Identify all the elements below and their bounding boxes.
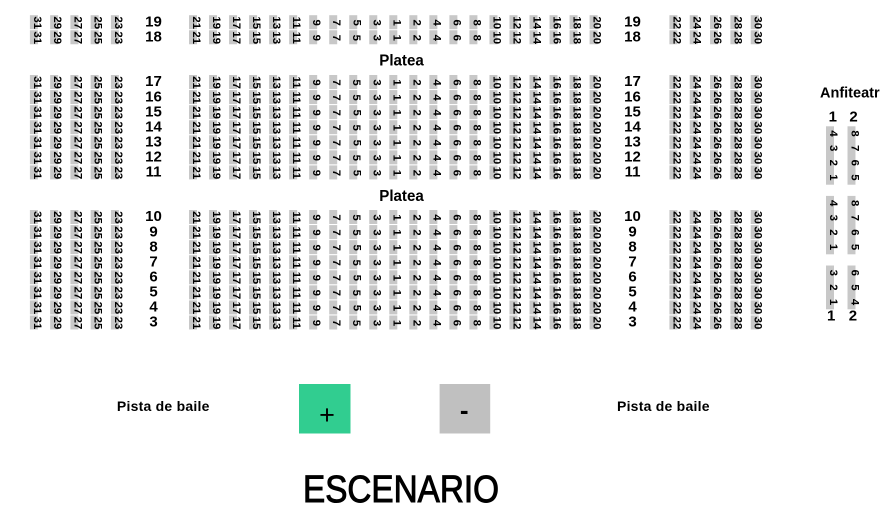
svg-text:11: 11 bbox=[290, 287, 302, 300]
svg-text:26: 26 bbox=[711, 317, 723, 330]
svg-text:19: 19 bbox=[210, 302, 222, 315]
svg-text:6: 6 bbox=[849, 270, 861, 276]
svg-text:7: 7 bbox=[330, 109, 342, 115]
svg-text:8: 8 bbox=[470, 125, 482, 131]
svg-text:29: 29 bbox=[51, 31, 63, 44]
svg-text:26: 26 bbox=[711, 152, 723, 165]
svg-text:11: 11 bbox=[290, 302, 302, 315]
svg-text:21: 21 bbox=[190, 271, 202, 284]
svg-text:9: 9 bbox=[310, 35, 322, 41]
svg-text:22: 22 bbox=[670, 152, 682, 165]
svg-text:26: 26 bbox=[711, 271, 723, 284]
svg-text:27: 27 bbox=[71, 136, 83, 149]
svg-text:13: 13 bbox=[270, 76, 282, 89]
svg-text:18: 18 bbox=[571, 271, 583, 284]
svg-text:8: 8 bbox=[849, 200, 861, 206]
svg-text:7: 7 bbox=[330, 170, 342, 176]
svg-text:13: 13 bbox=[270, 271, 282, 284]
svg-text:26: 26 bbox=[711, 16, 723, 29]
svg-text:4: 4 bbox=[430, 229, 442, 236]
svg-text:20: 20 bbox=[591, 76, 603, 89]
svg-text:8: 8 bbox=[849, 130, 861, 136]
svg-text:4: 4 bbox=[827, 200, 839, 207]
svg-text:1: 1 bbox=[390, 229, 402, 236]
svg-text:28: 28 bbox=[731, 167, 743, 180]
svg-text:8: 8 bbox=[470, 229, 482, 235]
svg-text:16: 16 bbox=[551, 271, 563, 284]
svg-text:12: 12 bbox=[510, 302, 522, 315]
svg-text:28: 28 bbox=[731, 16, 743, 29]
svg-text:22: 22 bbox=[670, 241, 682, 254]
svg-text:24: 24 bbox=[691, 241, 703, 254]
svg-text:18: 18 bbox=[571, 211, 583, 224]
svg-text:24: 24 bbox=[691, 16, 703, 29]
svg-text:5: 5 bbox=[350, 170, 362, 177]
svg-text:28: 28 bbox=[731, 31, 743, 44]
svg-text:21: 21 bbox=[190, 91, 202, 104]
svg-text:1: 1 bbox=[390, 305, 402, 312]
svg-text:27: 27 bbox=[71, 317, 83, 330]
svg-text:29: 29 bbox=[51, 241, 63, 254]
svg-text:21: 21 bbox=[190, 106, 202, 119]
svg-text:17: 17 bbox=[230, 16, 242, 29]
svg-text:11: 11 bbox=[290, 76, 302, 89]
svg-text:5: 5 bbox=[350, 214, 362, 221]
svg-text:17: 17 bbox=[230, 31, 242, 44]
svg-text:6: 6 bbox=[450, 305, 462, 311]
svg-text:8: 8 bbox=[470, 155, 482, 161]
svg-text:3: 3 bbox=[370, 214, 382, 220]
svg-text:26: 26 bbox=[711, 287, 723, 300]
svg-text:30: 30 bbox=[752, 152, 764, 165]
svg-text:9: 9 bbox=[310, 109, 322, 115]
svg-text:9: 9 bbox=[310, 170, 322, 176]
svg-text:16: 16 bbox=[551, 106, 563, 119]
svg-text:26: 26 bbox=[711, 136, 723, 149]
svg-text:3: 3 bbox=[370, 20, 382, 26]
svg-text:17: 17 bbox=[230, 136, 242, 149]
svg-text:13: 13 bbox=[270, 167, 282, 180]
svg-text:4: 4 bbox=[430, 109, 442, 116]
svg-text:1: 1 bbox=[827, 244, 839, 251]
svg-text:19: 19 bbox=[210, 211, 222, 224]
svg-text:2: 2 bbox=[827, 229, 839, 235]
svg-text:20: 20 bbox=[591, 317, 603, 330]
svg-text:20: 20 bbox=[591, 271, 603, 284]
svg-text:6: 6 bbox=[450, 229, 462, 235]
svg-text:14: 14 bbox=[531, 136, 543, 149]
svg-text:13: 13 bbox=[270, 302, 282, 315]
svg-text:8: 8 bbox=[470, 305, 482, 311]
svg-text:28: 28 bbox=[731, 241, 743, 254]
svg-text:11: 11 bbox=[290, 167, 302, 180]
svg-text:16: 16 bbox=[551, 256, 563, 269]
svg-text:19: 19 bbox=[210, 287, 222, 300]
svg-text:Platea: Platea bbox=[379, 53, 424, 70]
svg-text:5: 5 bbox=[350, 79, 362, 86]
svg-text:4: 4 bbox=[430, 155, 442, 162]
svg-text:30: 30 bbox=[752, 317, 764, 330]
svg-text:25: 25 bbox=[92, 271, 104, 284]
svg-text:1: 1 bbox=[827, 174, 839, 181]
svg-text:29: 29 bbox=[51, 226, 63, 239]
svg-text:9: 9 bbox=[310, 125, 322, 131]
svg-text:6: 6 bbox=[450, 155, 462, 161]
svg-text:12: 12 bbox=[510, 152, 522, 165]
svg-text:23: 23 bbox=[112, 136, 124, 149]
svg-text:9: 9 bbox=[310, 244, 322, 250]
svg-text:31: 31 bbox=[31, 106, 43, 119]
svg-text:21: 21 bbox=[190, 302, 202, 315]
svg-text:12: 12 bbox=[510, 76, 522, 89]
svg-text:9: 9 bbox=[310, 229, 322, 235]
svg-text:31: 31 bbox=[31, 76, 43, 89]
svg-text:25: 25 bbox=[92, 152, 104, 165]
svg-text:11: 11 bbox=[290, 92, 302, 105]
svg-text:2: 2 bbox=[849, 307, 857, 324]
svg-text:5: 5 bbox=[350, 229, 362, 236]
svg-text:24: 24 bbox=[691, 226, 703, 239]
svg-text:12: 12 bbox=[510, 317, 522, 330]
svg-text:7: 7 bbox=[330, 260, 342, 266]
svg-text:27: 27 bbox=[71, 287, 83, 300]
svg-text:31: 31 bbox=[31, 287, 43, 300]
svg-text:7: 7 bbox=[849, 145, 861, 151]
svg-text:6: 6 bbox=[450, 170, 462, 176]
svg-text:10: 10 bbox=[490, 152, 502, 165]
svg-text:10: 10 bbox=[490, 271, 502, 284]
svg-text:18: 18 bbox=[571, 241, 583, 254]
svg-text:23: 23 bbox=[112, 241, 124, 254]
svg-text:24: 24 bbox=[691, 211, 703, 224]
svg-text:3: 3 bbox=[370, 125, 382, 131]
svg-text:3: 3 bbox=[149, 314, 157, 331]
svg-text:11: 11 bbox=[290, 317, 302, 330]
svg-text:23: 23 bbox=[112, 302, 124, 315]
svg-text:13: 13 bbox=[270, 241, 282, 254]
svg-text:25: 25 bbox=[92, 76, 104, 89]
svg-text:26: 26 bbox=[711, 226, 723, 239]
svg-text:8: 8 bbox=[470, 170, 482, 176]
svg-text:16: 16 bbox=[551, 76, 563, 89]
svg-text:5: 5 bbox=[849, 284, 861, 291]
svg-text:5: 5 bbox=[350, 305, 362, 312]
svg-text:3: 3 bbox=[370, 320, 382, 326]
svg-text:7: 7 bbox=[330, 140, 342, 146]
svg-text:15: 15 bbox=[250, 302, 262, 315]
svg-text:1: 1 bbox=[390, 79, 402, 86]
svg-text:28: 28 bbox=[731, 271, 743, 284]
svg-text:7: 7 bbox=[849, 215, 861, 221]
svg-text:21: 21 bbox=[190, 226, 202, 239]
svg-text:18: 18 bbox=[571, 317, 583, 330]
svg-text:3: 3 bbox=[370, 170, 382, 176]
svg-text:Pista de baile: Pista de baile bbox=[617, 398, 710, 414]
svg-text:31: 31 bbox=[31, 271, 43, 284]
svg-text:4: 4 bbox=[430, 244, 442, 251]
svg-text:15: 15 bbox=[250, 317, 262, 330]
svg-text:18: 18 bbox=[571, 167, 583, 180]
svg-text:12: 12 bbox=[510, 271, 522, 284]
svg-text:21: 21 bbox=[190, 287, 202, 300]
svg-text:1: 1 bbox=[390, 94, 402, 101]
svg-text:7: 7 bbox=[330, 229, 342, 235]
svg-text:3: 3 bbox=[370, 79, 382, 85]
svg-text:25: 25 bbox=[92, 256, 104, 269]
svg-text:24: 24 bbox=[691, 167, 703, 180]
svg-text:10: 10 bbox=[490, 211, 502, 224]
svg-text:7: 7 bbox=[330, 275, 342, 281]
svg-text:14: 14 bbox=[531, 211, 543, 224]
svg-text:19: 19 bbox=[210, 241, 222, 254]
svg-text:7: 7 bbox=[330, 290, 342, 296]
svg-text:28: 28 bbox=[731, 91, 743, 104]
svg-text:24: 24 bbox=[691, 136, 703, 149]
svg-text:15: 15 bbox=[250, 241, 262, 254]
svg-text:11: 11 bbox=[290, 122, 302, 135]
svg-text:17: 17 bbox=[230, 121, 242, 134]
svg-text:26: 26 bbox=[711, 121, 723, 134]
svg-text:25: 25 bbox=[92, 211, 104, 224]
svg-text:1: 1 bbox=[390, 35, 402, 42]
svg-text:5: 5 bbox=[350, 125, 362, 132]
svg-text:15: 15 bbox=[250, 136, 262, 149]
svg-text:3: 3 bbox=[370, 109, 382, 115]
svg-text:27: 27 bbox=[71, 106, 83, 119]
svg-text:15: 15 bbox=[250, 76, 262, 89]
svg-text:3: 3 bbox=[370, 290, 382, 296]
svg-text:14: 14 bbox=[531, 226, 543, 239]
svg-text:31: 31 bbox=[31, 91, 43, 104]
svg-text:+: + bbox=[319, 400, 335, 430]
svg-text:7: 7 bbox=[330, 214, 342, 220]
svg-text:12: 12 bbox=[510, 136, 522, 149]
svg-text:15: 15 bbox=[250, 226, 262, 239]
svg-text:11: 11 bbox=[290, 32, 302, 45]
svg-text:6: 6 bbox=[450, 125, 462, 131]
svg-text:6: 6 bbox=[450, 109, 462, 115]
svg-text:2: 2 bbox=[410, 109, 422, 115]
svg-text:24: 24 bbox=[691, 76, 703, 89]
svg-text:6: 6 bbox=[450, 214, 462, 220]
svg-text:14: 14 bbox=[531, 271, 543, 284]
svg-text:4: 4 bbox=[430, 214, 442, 221]
svg-text:30: 30 bbox=[752, 136, 764, 149]
svg-text:2: 2 bbox=[410, 214, 422, 220]
svg-text:9: 9 bbox=[310, 140, 322, 146]
svg-text:Pista de baile: Pista de baile bbox=[117, 398, 210, 414]
svg-text:20: 20 bbox=[591, 16, 603, 29]
svg-text:13: 13 bbox=[270, 317, 282, 330]
svg-text:31: 31 bbox=[31, 152, 43, 165]
svg-text:30: 30 bbox=[752, 226, 764, 239]
svg-text:10: 10 bbox=[490, 302, 502, 315]
svg-text:22: 22 bbox=[670, 16, 682, 29]
svg-text:23: 23 bbox=[112, 76, 124, 89]
svg-text:4: 4 bbox=[430, 20, 442, 27]
svg-text:22: 22 bbox=[670, 91, 682, 104]
svg-text:31: 31 bbox=[31, 256, 43, 269]
svg-text:16: 16 bbox=[551, 226, 563, 239]
svg-text:25: 25 bbox=[92, 106, 104, 119]
svg-text:30: 30 bbox=[752, 256, 764, 269]
svg-text:2: 2 bbox=[410, 20, 422, 26]
svg-text:4: 4 bbox=[430, 125, 442, 132]
svg-text:24: 24 bbox=[691, 31, 703, 44]
svg-text:5: 5 bbox=[350, 290, 362, 297]
svg-text:10: 10 bbox=[490, 31, 502, 44]
svg-text:9: 9 bbox=[310, 79, 322, 85]
svg-text:1: 1 bbox=[390, 260, 402, 267]
svg-text:16: 16 bbox=[551, 167, 563, 180]
svg-text:10: 10 bbox=[490, 167, 502, 180]
svg-text:16: 16 bbox=[551, 152, 563, 165]
svg-text:31: 31 bbox=[31, 317, 43, 330]
svg-text:1: 1 bbox=[390, 320, 402, 327]
svg-text:17: 17 bbox=[230, 152, 242, 165]
svg-text:15: 15 bbox=[250, 152, 262, 165]
svg-text:26: 26 bbox=[711, 106, 723, 119]
svg-text:26: 26 bbox=[711, 302, 723, 315]
svg-text:10: 10 bbox=[490, 226, 502, 239]
svg-text:1: 1 bbox=[827, 299, 839, 306]
svg-text:1: 1 bbox=[390, 140, 402, 147]
svg-text:24: 24 bbox=[691, 106, 703, 119]
svg-text:1: 1 bbox=[827, 307, 835, 324]
svg-text:20: 20 bbox=[591, 211, 603, 224]
svg-text:1: 1 bbox=[390, 214, 402, 221]
svg-text:19: 19 bbox=[210, 31, 222, 44]
svg-text:21: 21 bbox=[190, 167, 202, 180]
svg-text:30: 30 bbox=[752, 76, 764, 89]
svg-text:6: 6 bbox=[450, 79, 462, 85]
svg-text:31: 31 bbox=[31, 31, 43, 44]
svg-text:31: 31 bbox=[31, 167, 43, 180]
svg-text:21: 21 bbox=[190, 121, 202, 134]
svg-text:22: 22 bbox=[670, 136, 682, 149]
svg-text:27: 27 bbox=[71, 167, 83, 180]
svg-text:16: 16 bbox=[551, 16, 563, 29]
svg-text:18: 18 bbox=[145, 28, 162, 45]
svg-text:23: 23 bbox=[112, 271, 124, 284]
svg-text:18: 18 bbox=[571, 31, 583, 44]
svg-text:14: 14 bbox=[531, 167, 543, 180]
svg-text:31: 31 bbox=[31, 136, 43, 149]
svg-text:29: 29 bbox=[51, 211, 63, 224]
svg-text:2: 2 bbox=[410, 244, 422, 250]
svg-text:6: 6 bbox=[450, 94, 462, 100]
svg-text:30: 30 bbox=[752, 241, 764, 254]
svg-text:4: 4 bbox=[430, 290, 442, 297]
svg-text:9: 9 bbox=[310, 305, 322, 311]
svg-text:28: 28 bbox=[731, 287, 743, 300]
svg-text:8: 8 bbox=[470, 275, 482, 281]
svg-text:20: 20 bbox=[591, 256, 603, 269]
svg-text:12: 12 bbox=[510, 16, 522, 29]
svg-text:3: 3 bbox=[370, 229, 382, 235]
svg-text:22: 22 bbox=[670, 302, 682, 315]
svg-text:27: 27 bbox=[71, 31, 83, 44]
svg-text:15: 15 bbox=[250, 16, 262, 29]
svg-text:21: 21 bbox=[190, 76, 202, 89]
svg-text:10: 10 bbox=[490, 106, 502, 119]
svg-text:11: 11 bbox=[290, 242, 302, 255]
svg-text:17: 17 bbox=[230, 167, 242, 180]
svg-text:18: 18 bbox=[624, 28, 641, 45]
svg-text:8: 8 bbox=[470, 214, 482, 220]
svg-text:31: 31 bbox=[31, 302, 43, 315]
svg-text:9: 9 bbox=[310, 320, 322, 326]
svg-text:27: 27 bbox=[71, 16, 83, 29]
svg-text:22: 22 bbox=[670, 167, 682, 180]
svg-text:28: 28 bbox=[731, 211, 743, 224]
svg-text:15: 15 bbox=[250, 271, 262, 284]
svg-text:7: 7 bbox=[330, 320, 342, 326]
svg-text:22: 22 bbox=[670, 317, 682, 330]
svg-text:28: 28 bbox=[731, 256, 743, 269]
svg-text:22: 22 bbox=[670, 76, 682, 89]
svg-text:15: 15 bbox=[250, 256, 262, 269]
svg-text:7: 7 bbox=[330, 244, 342, 250]
svg-text:5: 5 bbox=[350, 320, 362, 327]
svg-text:13: 13 bbox=[270, 16, 282, 29]
svg-text:16: 16 bbox=[551, 31, 563, 44]
svg-text:1: 1 bbox=[829, 109, 837, 126]
svg-text:19: 19 bbox=[210, 271, 222, 284]
svg-text:5: 5 bbox=[350, 140, 362, 147]
svg-text:30: 30 bbox=[752, 167, 764, 180]
svg-text:28: 28 bbox=[731, 76, 743, 89]
svg-text:26: 26 bbox=[711, 76, 723, 89]
svg-text:20: 20 bbox=[591, 31, 603, 44]
svg-text:1: 1 bbox=[390, 244, 402, 251]
svg-text:20: 20 bbox=[591, 287, 603, 300]
svg-text:20: 20 bbox=[591, 302, 603, 315]
svg-text:6: 6 bbox=[450, 35, 462, 41]
svg-text:8: 8 bbox=[470, 320, 482, 326]
svg-text:21: 21 bbox=[190, 256, 202, 269]
svg-text:26: 26 bbox=[711, 31, 723, 44]
svg-text:21: 21 bbox=[190, 317, 202, 330]
svg-text:19: 19 bbox=[210, 16, 222, 29]
svg-text:Platea: Platea bbox=[379, 188, 424, 205]
svg-text:14: 14 bbox=[531, 121, 543, 134]
svg-text:11: 11 bbox=[290, 17, 302, 30]
svg-text:16: 16 bbox=[551, 302, 563, 315]
svg-text:27: 27 bbox=[71, 302, 83, 315]
svg-text:10: 10 bbox=[490, 16, 502, 29]
svg-text:19: 19 bbox=[210, 91, 222, 104]
svg-text:29: 29 bbox=[51, 256, 63, 269]
svg-text:29: 29 bbox=[51, 317, 63, 330]
svg-text:13: 13 bbox=[270, 106, 282, 119]
svg-text:27: 27 bbox=[71, 152, 83, 165]
svg-text:10: 10 bbox=[490, 287, 502, 300]
svg-text:1: 1 bbox=[390, 125, 402, 132]
svg-text:21: 21 bbox=[190, 16, 202, 29]
svg-text:3: 3 bbox=[370, 305, 382, 311]
svg-text:23: 23 bbox=[112, 106, 124, 119]
svg-text:8: 8 bbox=[470, 140, 482, 146]
svg-text:23: 23 bbox=[112, 121, 124, 134]
svg-text:16: 16 bbox=[551, 211, 563, 224]
svg-text:9: 9 bbox=[310, 155, 322, 161]
svg-text:12: 12 bbox=[510, 121, 522, 134]
svg-text:-: - bbox=[460, 395, 469, 425]
svg-text:10: 10 bbox=[490, 241, 502, 254]
svg-text:18: 18 bbox=[571, 91, 583, 104]
svg-text:21: 21 bbox=[190, 211, 202, 224]
